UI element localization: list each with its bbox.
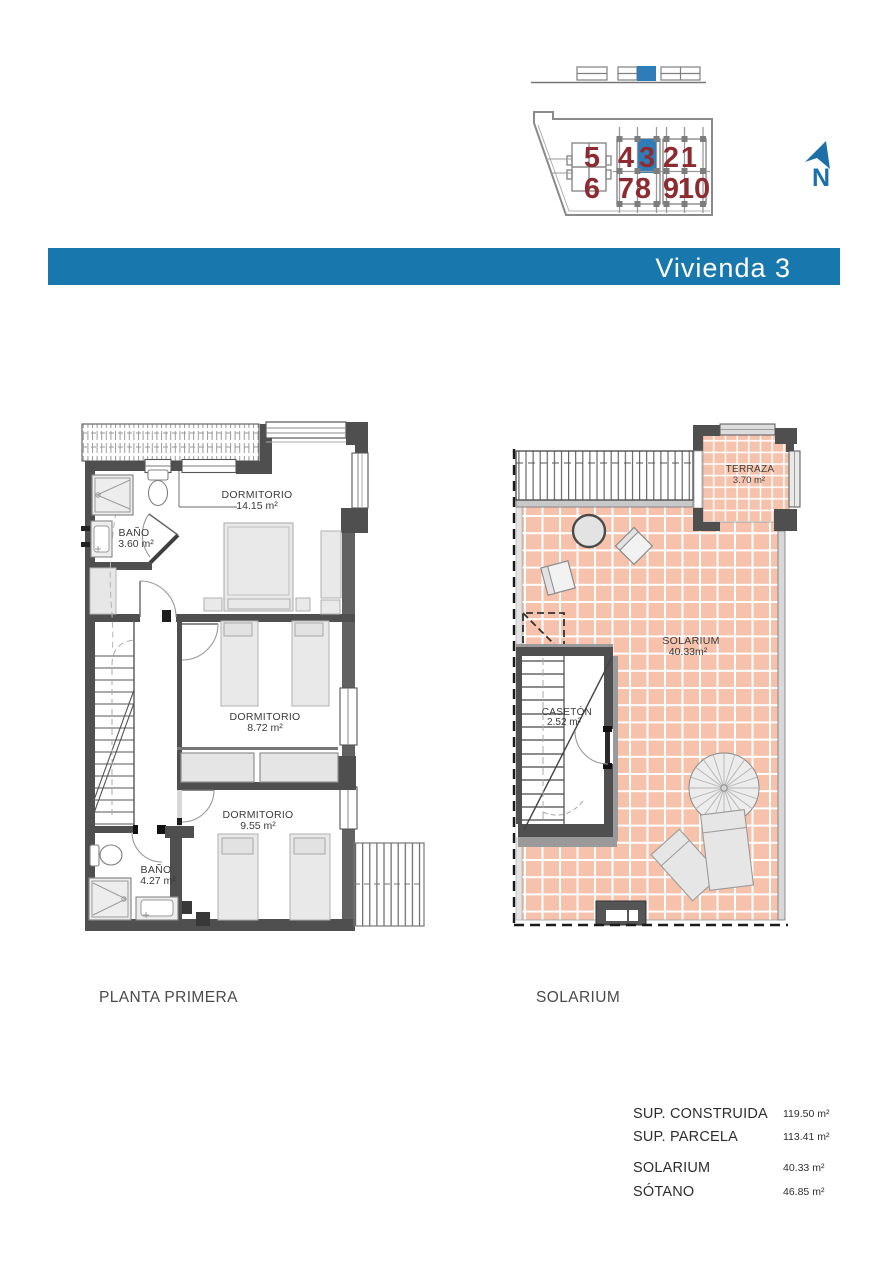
svg-text:5: 5: [584, 142, 600, 174]
svg-text:46.85 m²: 46.85 m²: [783, 1186, 825, 1198]
svg-text:7: 7: [618, 173, 634, 205]
svg-text:6: 6: [584, 173, 600, 205]
svg-text:113.41 m²: 113.41 m²: [783, 1131, 830, 1143]
svg-text:Vivienda 3: Vivienda 3: [655, 253, 791, 283]
svg-text:1: 1: [681, 142, 697, 174]
svg-text:9: 9: [663, 173, 679, 205]
svg-text:14.15 m²: 14.15 m²: [236, 500, 278, 512]
svg-text:4.27 m²: 4.27 m²: [140, 875, 176, 887]
svg-text:9.55 m²: 9.55 m²: [240, 820, 276, 832]
svg-text:PLANTA PRIMERA: PLANTA PRIMERA: [99, 989, 238, 1006]
svg-text:3: 3: [639, 142, 655, 174]
svg-text:SOLARIUM: SOLARIUM: [536, 989, 620, 1006]
svg-text:SOLARIUM: SOLARIUM: [633, 1160, 710, 1176]
svg-text:40.33m²: 40.33m²: [669, 646, 708, 658]
svg-text:4: 4: [618, 142, 634, 174]
svg-text:119.50 m²: 119.50 m²: [783, 1108, 830, 1120]
svg-text:3.70 m²: 3.70 m²: [733, 475, 765, 486]
svg-text:8: 8: [635, 173, 651, 205]
svg-text:40.33 m²: 40.33 m²: [783, 1162, 825, 1174]
svg-text:10: 10: [678, 173, 710, 205]
svg-text:8.72 m²: 8.72 m²: [247, 722, 283, 734]
svg-text:2.52 m²: 2.52 m²: [547, 717, 582, 728]
svg-text:3.60 m²: 3.60 m²: [118, 538, 154, 550]
svg-text:SUP. PARCELA: SUP. PARCELA: [633, 1129, 738, 1145]
svg-text:SUP. CONSTRUIDA: SUP. CONSTRUIDA: [633, 1106, 768, 1122]
svg-text:SÓTANO: SÓTANO: [633, 1183, 694, 1200]
svg-text:TERRAZA: TERRAZA: [726, 464, 775, 475]
svg-text:N: N: [812, 164, 830, 192]
svg-text:2: 2: [663, 142, 679, 174]
